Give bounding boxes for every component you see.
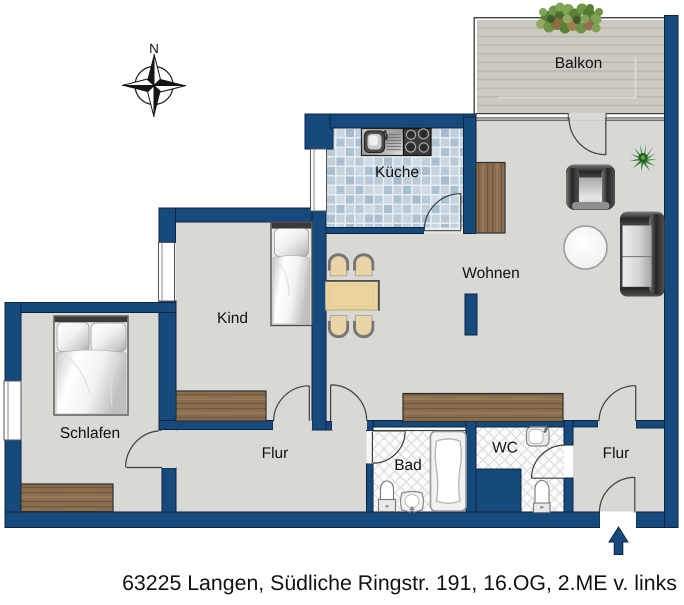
svg-text:Flur: Flur <box>262 445 289 462</box>
svg-text:Wohnen: Wohnen <box>462 265 519 282</box>
svg-text:63225 Langen, Südliche Ringstr: 63225 Langen, Südliche Ringstr. 191, 16.… <box>122 571 677 595</box>
svg-text:N: N <box>149 41 159 56</box>
svg-text:Flur: Flur <box>603 445 630 462</box>
svg-text:Schlafen: Schlafen <box>60 425 120 442</box>
svg-text:Küche: Küche <box>375 164 419 181</box>
svg-text:Kind: Kind <box>217 310 248 327</box>
svg-text:WC: WC <box>492 440 518 457</box>
svg-text:Balkon: Balkon <box>555 55 602 72</box>
svg-text:Bad: Bad <box>394 457 422 474</box>
